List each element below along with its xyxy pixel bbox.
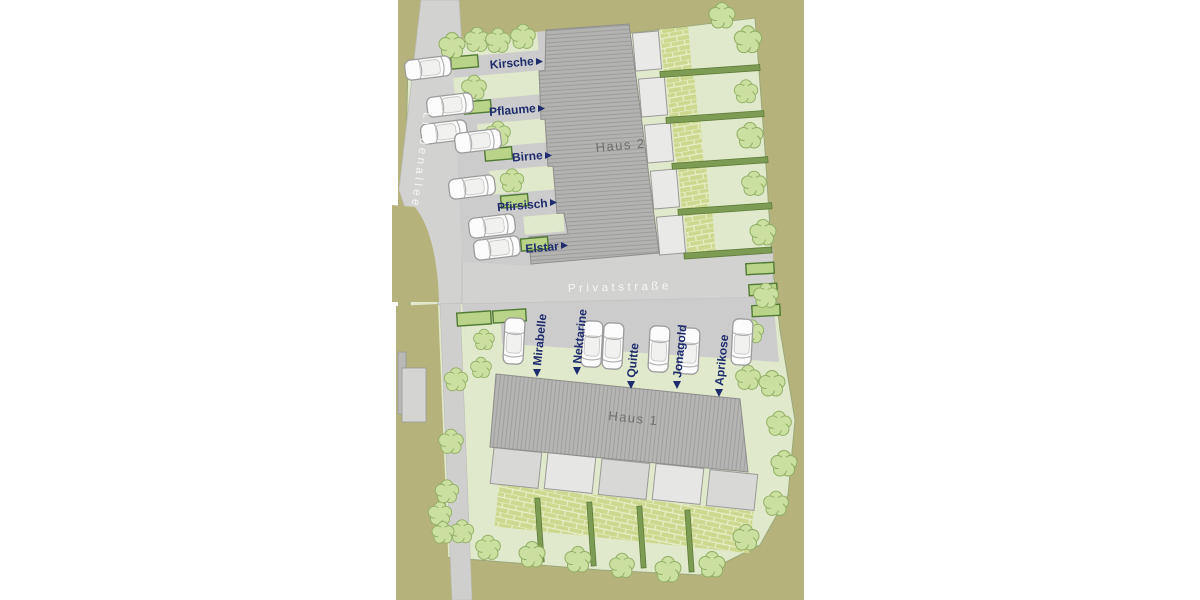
patio — [678, 165, 710, 211]
car-icon — [648, 326, 670, 373]
terrace — [598, 459, 650, 500]
patio — [660, 27, 692, 73]
patio — [666, 73, 698, 119]
lawn-finger — [523, 213, 564, 234]
entrance-label-birne: Birne — [511, 148, 543, 165]
car-icon — [602, 323, 624, 370]
car-icon — [731, 319, 753, 366]
terrace — [638, 77, 667, 117]
site-plan-canvas: Haus 2 Haus 1 — [0, 0, 1200, 600]
site-plan: Haus 2 Haus 1 — [0, 0, 1200, 600]
car-icon — [503, 318, 525, 365]
terrace — [706, 470, 758, 511]
terrace — [490, 448, 542, 489]
terrace — [632, 31, 661, 71]
terrace — [650, 169, 679, 209]
terrace — [652, 464, 704, 505]
hedge — [746, 262, 775, 274]
terrace — [644, 123, 673, 163]
neighbor-building — [402, 368, 426, 422]
terrace — [544, 453, 596, 494]
hedge — [457, 311, 492, 326]
entrance-label-elstar: Elstar — [525, 239, 560, 256]
terrace — [656, 215, 685, 255]
patio — [684, 211, 716, 257]
patio — [672, 119, 704, 165]
